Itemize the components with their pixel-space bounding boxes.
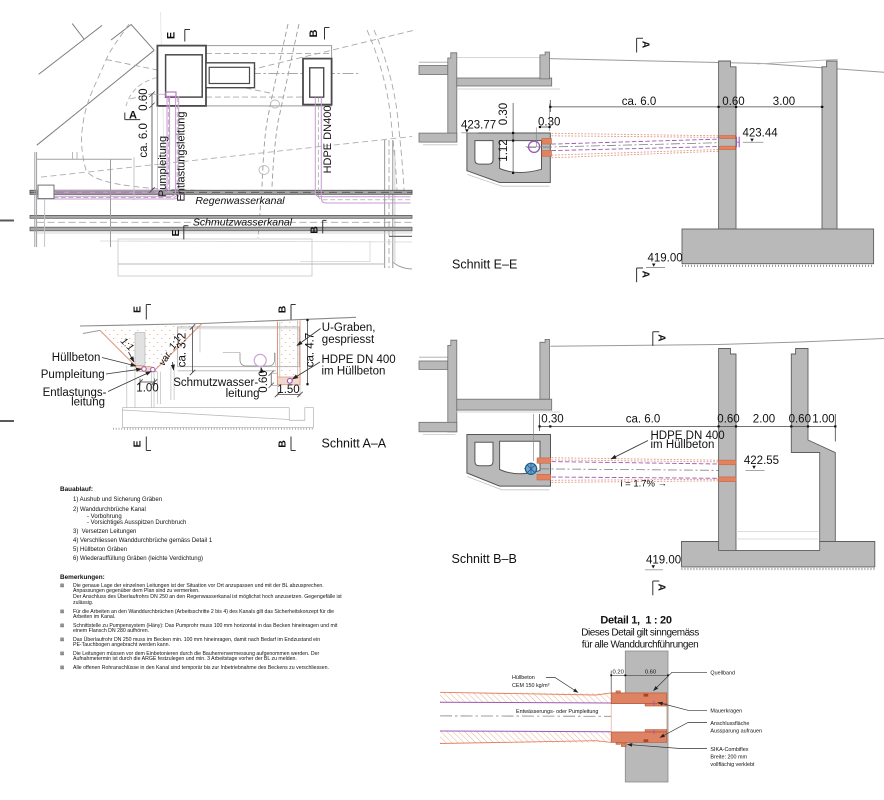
svg-text:B: B (276, 305, 288, 313)
svg-text:0.60: 0.60 (645, 669, 656, 675)
svg-text:ca. 4.7: ca. 4.7 (304, 333, 316, 368)
svg-text:Quellband: Quellband (710, 671, 735, 677)
svg-text:U-Graben,: U-Graben, (322, 322, 376, 334)
svg-text:Aussparung aufrauen: Aussparung aufrauen (710, 728, 762, 734)
svg-text:Breite: 200 mm: Breite: 200 mm (710, 755, 747, 761)
svg-text:1.00: 1.00 (812, 414, 834, 426)
svg-text:Schnitt A–A: Schnitt A–A (322, 437, 387, 451)
svg-text:Mauerkragen: Mauerkragen (710, 709, 742, 715)
svg-text:Schnitt B–B: Schnitt B–B (452, 552, 517, 566)
svg-text:A: A (656, 584, 667, 591)
svg-text:Entlastungsleitung: Entlastungsleitung (176, 112, 188, 202)
svg-text:E: E (132, 440, 144, 447)
svg-text:1.00: 1.00 (136, 383, 158, 395)
svg-text:E: E (166, 32, 178, 39)
svg-text:Schnitt E–E: Schnitt E–E (452, 258, 517, 272)
svg-text:vollflächig verklebt: vollflächig verklebt (710, 762, 755, 768)
svg-text:Hüllbeton: Hüllbeton (512, 675, 535, 681)
svg-text:A: A (129, 110, 137, 122)
svg-text:1.50: 1.50 (277, 384, 299, 396)
svg-text:A: A (639, 41, 650, 48)
svg-text:ca. 3.2: ca. 3.2 (177, 333, 189, 368)
svg-text:Anschlussfläche: Anschlussfläche (710, 721, 749, 727)
svg-text:0.60: 0.60 (138, 89, 150, 111)
svg-text:SIKA-Combiflex: SIKA-Combiflex (710, 747, 748, 753)
svg-text:0.60: 0.60 (789, 414, 811, 426)
svg-text:leitung: leitung (71, 397, 105, 409)
svg-text:2.00: 2.00 (753, 414, 775, 426)
svg-text:419.00: 419.00 (646, 555, 681, 567)
svg-text:Dieses Detail gilt sinngemäss: Dieses Detail gilt sinngemäss (581, 628, 699, 639)
svg-text:ca. 6.0: ca. 6.0 (138, 123, 150, 158)
svg-text:3.00: 3.00 (773, 96, 795, 108)
svg-text:gespriesst: gespriesst (322, 334, 375, 346)
svg-text:0.30: 0.30 (538, 117, 560, 129)
svg-text:0.30: 0.30 (498, 103, 510, 125)
svg-text:für alle Wanddurchführungen: für alle Wanddurchführungen (582, 640, 698, 651)
svg-text:i = 1.7% →: i = 1.7% → (620, 479, 667, 490)
svg-text:Regenwasserkanal: Regenwasserkanal (195, 195, 285, 207)
svg-text:Pumpleitung: Pumpleitung (41, 369, 105, 381)
svg-text:B: B (309, 226, 321, 234)
svg-text:0.30: 0.30 (541, 414, 563, 426)
svg-text:0.60: 0.60 (722, 96, 744, 108)
svg-text:423.44: 423.44 (743, 128, 779, 140)
svg-text:E: E (170, 229, 182, 236)
svg-text:Pumpleitung: Pumpleitung (157, 136, 169, 197)
svg-text:CEM 150 kg/m³: CEM 150 kg/m³ (512, 683, 550, 689)
svg-text:0.60: 0.60 (258, 370, 270, 392)
svg-text:1.12: 1.12 (498, 139, 510, 161)
svg-text:0.20: 0.20 (613, 669, 624, 675)
svg-text:B: B (276, 440, 288, 448)
svg-text:B: B (308, 29, 320, 37)
svg-text:Hüllbeton: Hüllbeton (52, 352, 101, 364)
svg-text:A: A (639, 271, 650, 278)
svg-text:ca. 6.0: ca. 6.0 (622, 96, 657, 108)
svg-text:leitung: leitung (226, 388, 260, 400)
svg-text:419.00: 419.00 (648, 253, 683, 265)
svg-text:Entwässerungs- oder Pumpleitun: Entwässerungs- oder Pumpleitung (516, 709, 598, 715)
svg-text:0.60: 0.60 (717, 414, 739, 426)
svg-text:im Hüllbeton: im Hüllbeton (651, 439, 715, 451)
svg-text:HDPE DN400: HDPE DN400 (322, 106, 334, 174)
svg-text:HDPE DN 400: HDPE DN 400 (322, 354, 396, 366)
svg-text:Detail 1, 1 : 20: Detail 1, 1 : 20 (600, 615, 672, 627)
svg-text:Schmutzwasserkanal: Schmutzwasserkanal (193, 217, 293, 229)
svg-text:ca. 6.0: ca. 6.0 (626, 414, 661, 426)
svg-text:E: E (132, 306, 144, 313)
svg-text:im Hüllbeton: im Hüllbeton (322, 366, 386, 378)
svg-text:A: A (656, 334, 667, 341)
svg-text:422.55: 422.55 (744, 455, 779, 467)
